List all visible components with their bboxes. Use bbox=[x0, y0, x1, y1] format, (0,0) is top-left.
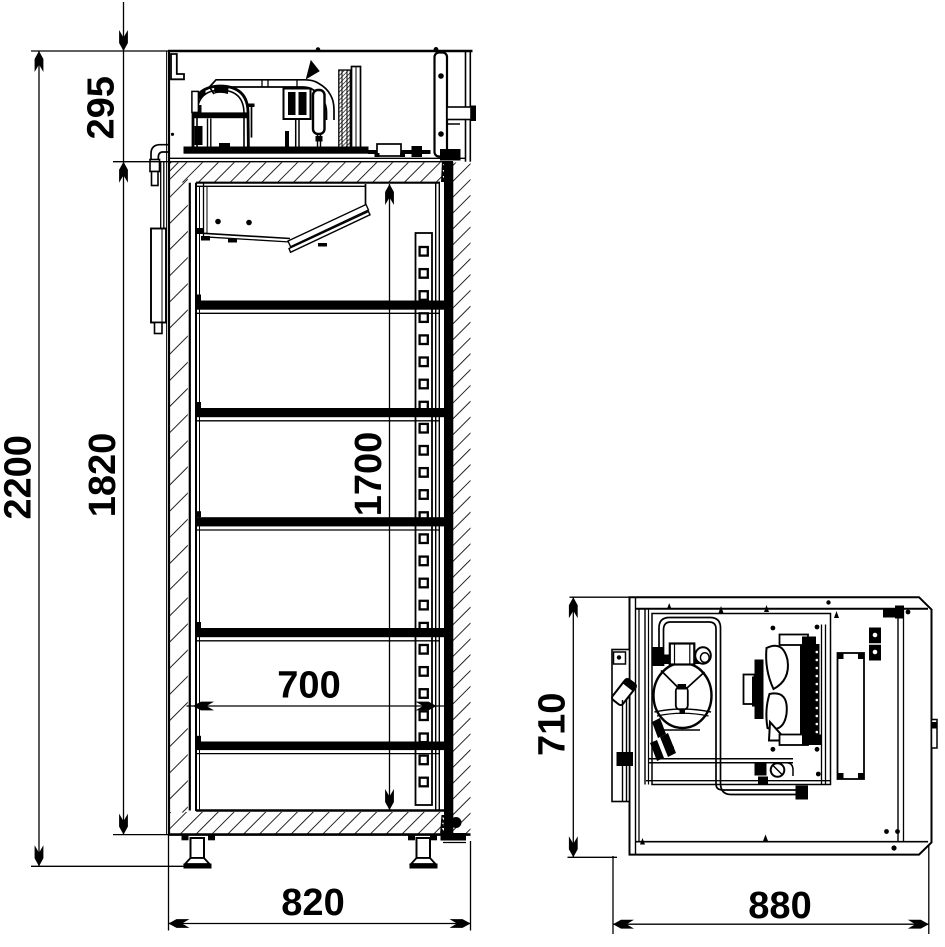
svg-text:700: 700 bbox=[277, 664, 340, 706]
svg-text:820: 820 bbox=[281, 882, 344, 924]
svg-text:1700: 1700 bbox=[348, 432, 390, 517]
svg-text:710: 710 bbox=[532, 693, 574, 756]
svg-text:295: 295 bbox=[81, 76, 123, 139]
svg-text:880: 880 bbox=[748, 885, 811, 927]
svg-text:1820: 1820 bbox=[82, 433, 124, 518]
svg-text:2200: 2200 bbox=[0, 435, 40, 520]
